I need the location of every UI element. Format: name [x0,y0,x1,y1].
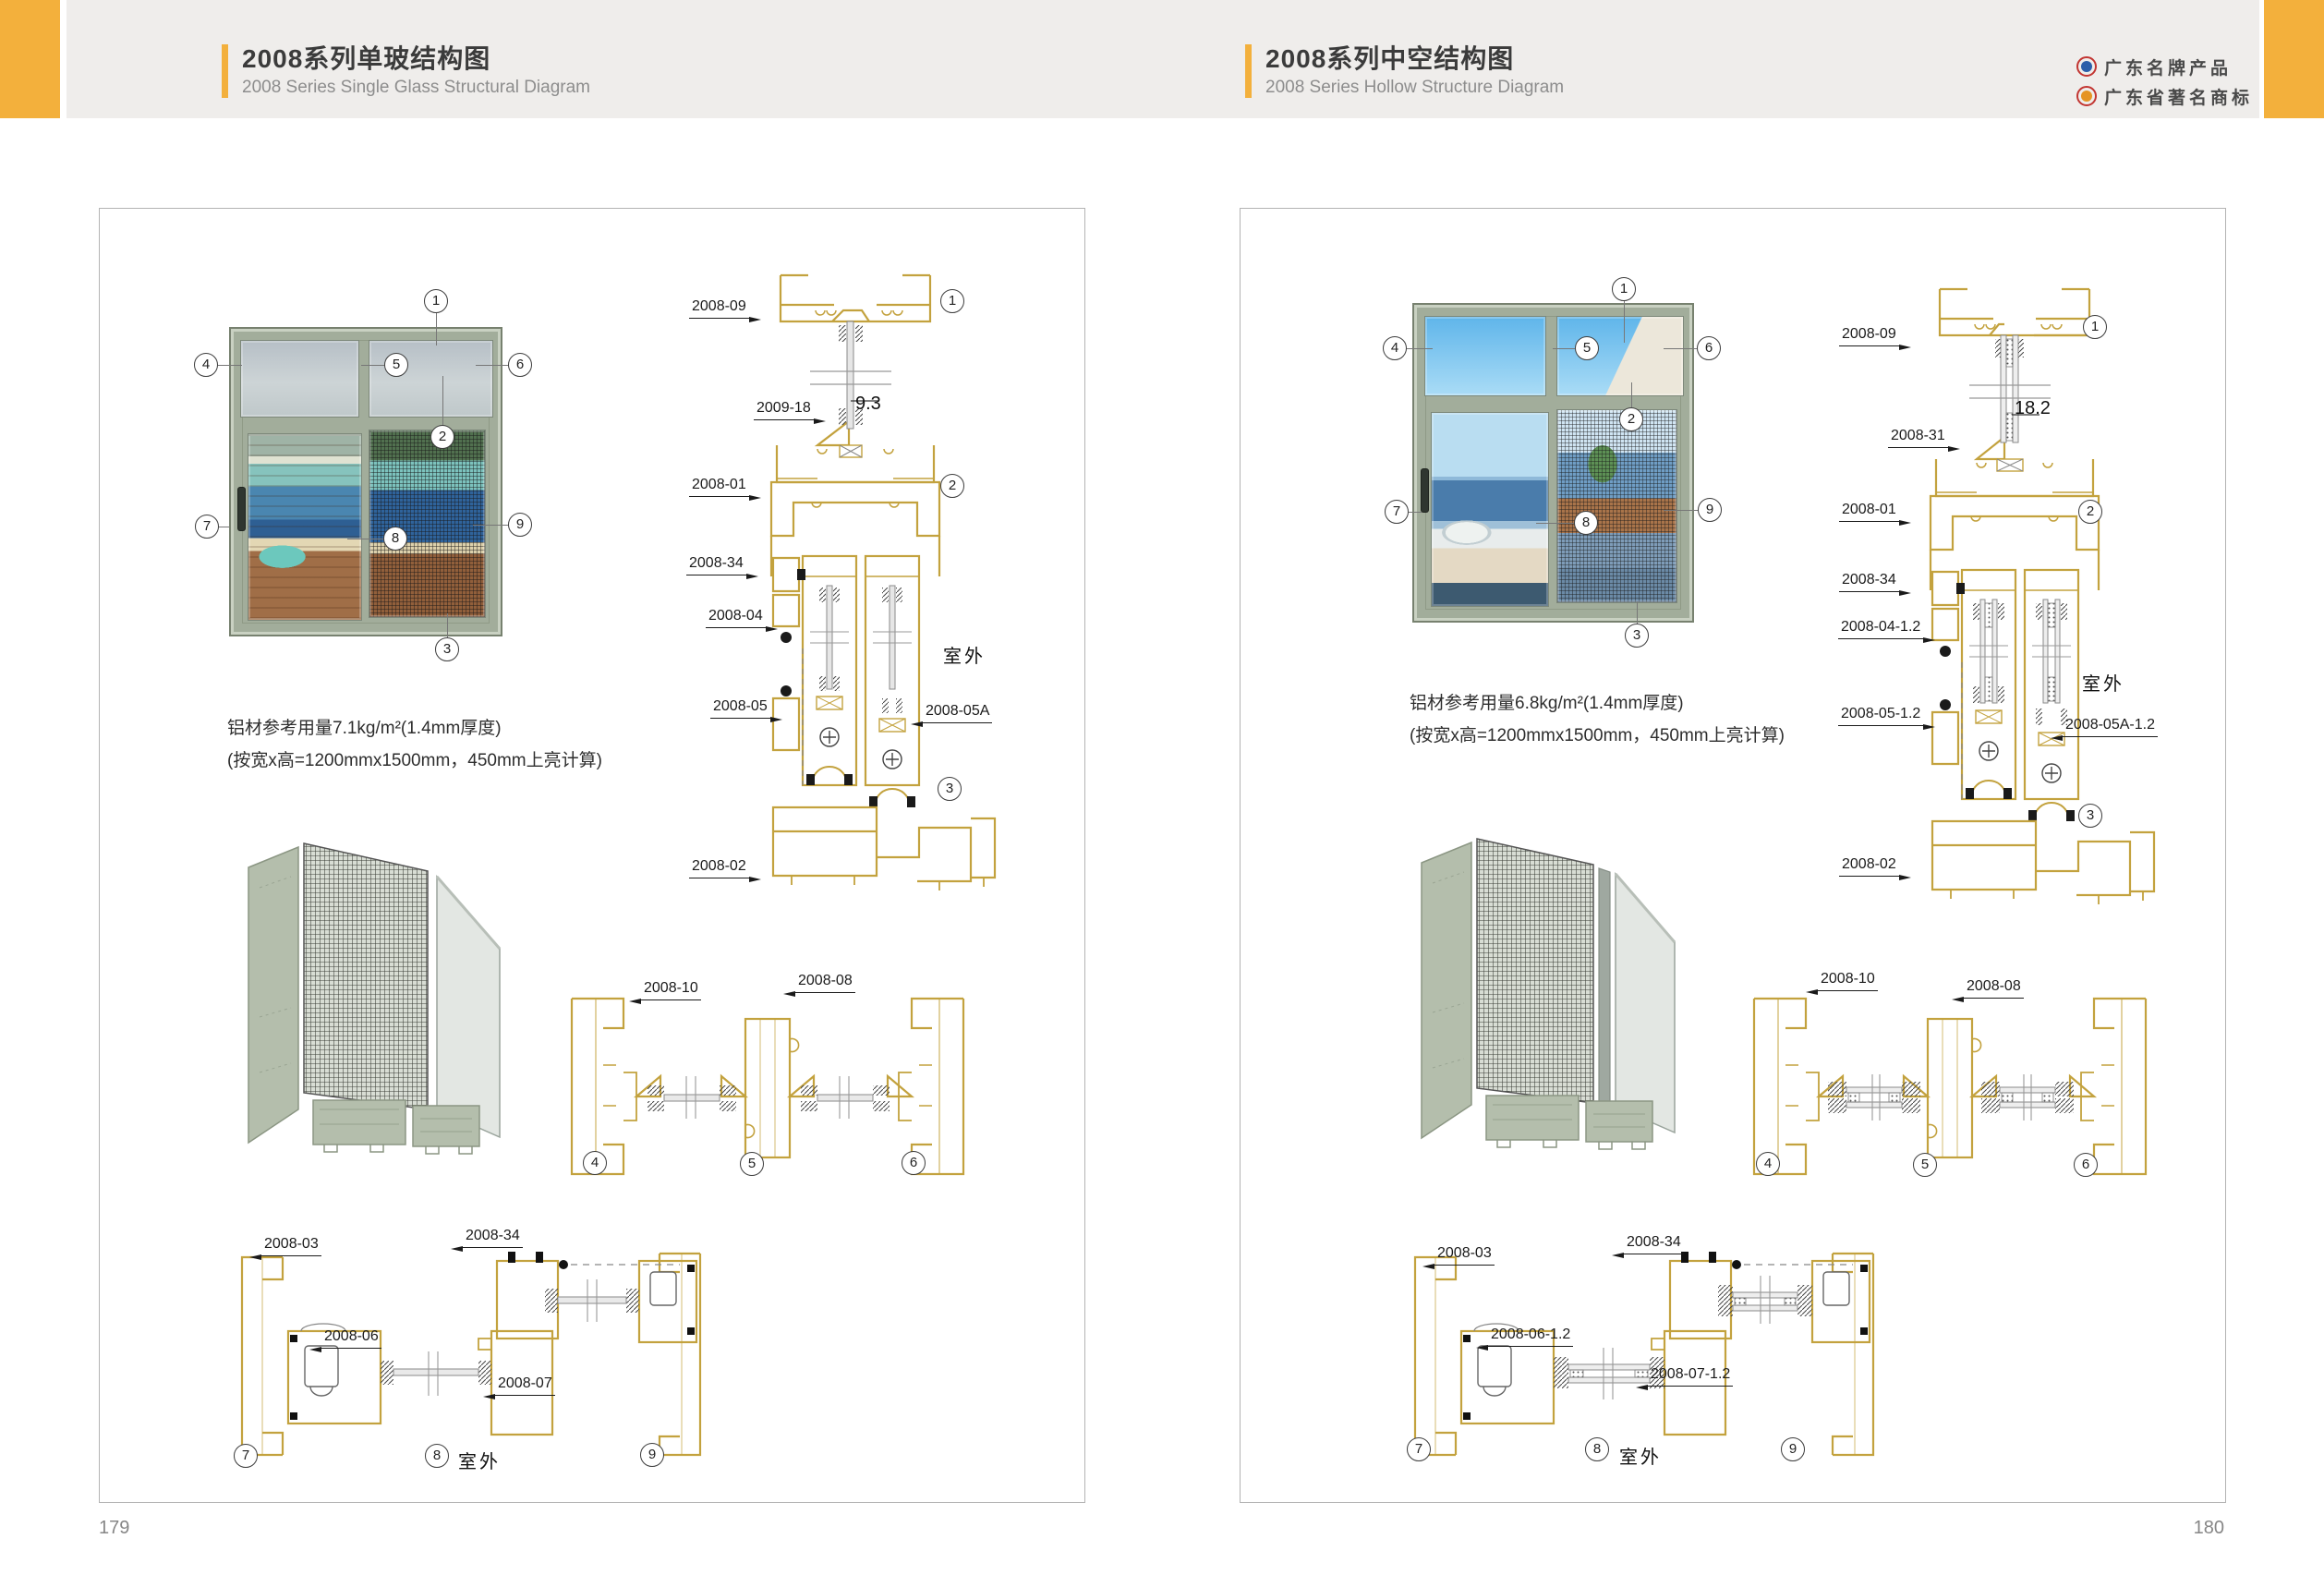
section-callout-7: 7 [234,1444,258,1468]
label-top-frame: 2008-09 [689,298,749,319]
right-page-header: 2008系列中空结构图 2008 Series Hollow Structure… [1245,44,1564,98]
transom-pane [1424,316,1547,397]
right-page-subtitle: 2008 Series Hollow Structure Diagram [1265,78,1564,98]
left-accent-block [0,0,60,118]
section-callout-4: 4 [583,1151,607,1175]
certification-badges: 广东名牌产品 广东省著名商标 [2076,52,2253,111]
glass-thickness-dim: 9.3 [855,394,881,415]
middle-section: 2008-10 2008-08 4 5 6 [1737,962,2162,1193]
callout-leader [1664,510,1698,511]
outdoor-label: 室外 [1619,1442,1662,1469]
accent-bar [1245,44,1252,98]
glass-thickness-dim: 18.2 [2015,398,2051,419]
callout-leader [1409,512,1422,513]
window-handle [238,488,245,530]
callout-1: 1 [424,289,448,313]
callout-leader [1631,382,1632,407]
label-gasket-bottom-alt: 2008-05A-1.2 [2063,717,2158,737]
label-corner-block: 2008-34 [686,555,746,575]
section-callout-1: 1 [2083,315,2107,339]
label-block: 2008-34 [463,1228,523,1248]
screen-pane [369,430,487,618]
window-handle [1422,469,1428,512]
section-callout-4: 4 [1756,1152,1780,1176]
label-main-frame: 2008-01 [689,477,749,497]
callout-1: 1 [1612,277,1636,301]
section-callout-6: 6 [902,1151,926,1175]
label-bottom-track: 2008-02 [1839,856,1899,877]
vertical-section-drawing [758,264,1045,929]
label-interlock: 2008-08 [795,973,855,993]
sliding-pane [1431,412,1549,607]
label-jamb: 2008-03 [261,1236,321,1256]
label-jamb: 2008-03 [1434,1245,1495,1266]
label-gasket-bottom: 2008-05-1.2 [1838,706,1923,726]
transom-pane [240,340,359,418]
page-number-left: 179 [99,1518,129,1539]
label-stile-b: 2008-07-1.2 [1648,1366,1733,1387]
bottom-section: 2008-03 2008-34 2008-06-1.2 2008-07-1.2 … [1396,1220,1913,1488]
section-callout-9: 9 [1781,1437,1805,1461]
section-callout-6: 6 [2074,1153,2098,1177]
bottom-section: 2008-03 2008-34 2008-06 2008-07 7 8 室外 9 [223,1220,740,1488]
section-callout-3: 3 [938,777,962,801]
section-callout-2: 2 [940,474,964,498]
label-stile-b: 2008-07 [495,1375,555,1396]
label-bottom-track: 2008-02 [689,858,749,878]
callout-8: 8 [1574,511,1598,535]
callout-leader [219,527,229,527]
profile-3d-render [1405,828,1682,1156]
label-gasket-bottom: 2008-05 [710,698,770,719]
callout-3: 3 [1625,624,1649,648]
callout-leader [442,376,443,425]
aluminum-usage-note: 铝材参考用量7.1kg/m²(1.4mm厚度) (按宽x高=1200mmx150… [227,712,602,777]
callout-leader [347,539,383,539]
callout-6: 6 [1697,336,1721,360]
callout-leader [473,525,508,526]
label-glazing-bead: 2008-31 [1888,428,1948,448]
right-accent-block [2264,0,2324,118]
window-photo [1412,303,1694,623]
callout-4: 4 [194,353,218,377]
callout-9: 9 [1698,498,1722,522]
badge-row: 广东名牌产品 [2076,52,2253,81]
outdoor-label: 室外 [943,641,986,668]
label-block: 2008-34 [1624,1234,1684,1254]
callout-leader [361,365,384,366]
badge-label: 广东名牌产品 [2104,55,2232,79]
callout-7: 7 [195,515,219,539]
middle-section-drawing [1737,987,2162,1186]
section-callout-5: 5 [740,1152,764,1176]
section-callout-7: 7 [1407,1437,1431,1461]
badge-row: 广东省著名商标 [2076,81,2253,111]
label-jamb: 2008-10 [1818,971,1878,991]
aluminum-usage-note: 铝材参考用量6.8kg/m²(1.4mm厚度) (按宽x高=1200mmx150… [1410,687,1785,752]
right-page-title: 2008系列中空结构图 [1265,44,1564,74]
callout-3: 3 [435,637,459,661]
label-corner-block: 2008-34 [1839,572,1899,592]
label-stile-a: 2008-06-1.2 [1488,1327,1573,1347]
section-callout-9: 9 [640,1443,664,1467]
accent-bar [222,44,228,98]
profile-3d-render [232,832,509,1160]
callout-4: 4 [1383,336,1407,360]
callout-6: 6 [508,353,532,377]
section-callout-3: 3 [2078,804,2102,828]
label-glazing-bead: 2009-18 [754,400,814,420]
section-callout-8: 8 [425,1444,449,1468]
vertical-section: 2008-09 1 2009-18 9.3 2008-01 2 2008-34 … [680,264,1059,929]
section-callout-8: 8 [1585,1437,1609,1461]
badge-label: 广东省著名商标 [2104,84,2253,109]
usage-line-2: (按宽x高=1200mmx1500mm，450mm上亮计算) [1410,720,1785,752]
callout-leader [436,313,437,345]
section-callout-2: 2 [2078,500,2102,524]
callout-leader [1664,348,1697,349]
right-page: 1 4 5 6 2 7 9 8 3 铝材参考用量6.8kg/m²(1.4mm厚度… [1240,208,2226,1503]
vertical-section: 2008-09 1 18.2 2008-31 2008-01 2 2008-34… [1830,278,2218,934]
callout-9: 9 [508,513,532,537]
outdoor-label: 室外 [2082,669,2124,696]
left-page-subtitle: 2008 Series Single Glass Structural Diag… [242,78,590,98]
callout-2: 2 [1619,407,1643,431]
label-stile-a: 2008-06 [321,1328,381,1349]
page-number-right: 180 [2169,1518,2224,1539]
bottom-section-drawing [227,1250,708,1462]
label-jamb: 2008-10 [641,980,701,1000]
usage-line-2: (按宽x高=1200mmx1500mm，450mm上亮计算) [227,745,602,777]
callout-2: 2 [430,425,454,449]
usage-line-1: 铝材参考用量7.1kg/m²(1.4mm厚度) [227,712,602,745]
callout-leader [1536,523,1574,524]
outdoor-label: 室外 [458,1447,501,1473]
usage-line-1: 铝材参考用量6.8kg/m²(1.4mm厚度) [1410,687,1785,720]
transom-pane [369,340,493,418]
callout-leader [447,613,448,637]
label-gasket-top: 2008-04-1.2 [1838,619,1923,639]
bottom-section-drawing [1400,1250,1881,1462]
window-photo [229,327,502,636]
callout-leader [476,365,508,366]
callout-leader [1637,601,1638,624]
section-callout-5: 5 [1913,1153,1937,1177]
middle-section: 2008-10 2008-08 4 5 6 [555,962,980,1193]
callout-5: 5 [1575,336,1599,360]
left-page-header: 2008系列单玻结构图 2008 Series Single Glass Str… [222,44,590,98]
label-top-frame: 2008-09 [1839,326,1899,346]
callout-leader [218,365,242,366]
callout-leader [1624,301,1625,343]
callout-leader [1407,348,1433,349]
sliding-pane [248,433,363,622]
label-interlock: 2008-08 [1964,978,2024,999]
section-callout-1: 1 [940,289,964,313]
label-gasket-top: 2008-04 [706,608,766,628]
vertical-section-drawing [1918,278,2204,934]
callout-leader [1553,348,1575,349]
famous-brand-badge-icon [2076,56,2097,77]
screen-pane [1556,409,1677,604]
label-main-frame: 2008-01 [1839,502,1899,522]
left-page-title: 2008系列单玻结构图 [242,44,590,74]
callout-8: 8 [383,527,407,551]
label-gasket-bottom-alt: 2008-05A [923,703,992,723]
callout-5: 5 [384,353,408,377]
transom-pane [1556,316,1685,397]
callout-7: 7 [1385,500,1409,524]
left-page: 1 4 5 6 2 7 9 8 3 铝材参考用量7.1kg/m²(1.4mm厚度… [99,208,1085,1503]
famous-trademark-badge-icon [2076,86,2097,106]
